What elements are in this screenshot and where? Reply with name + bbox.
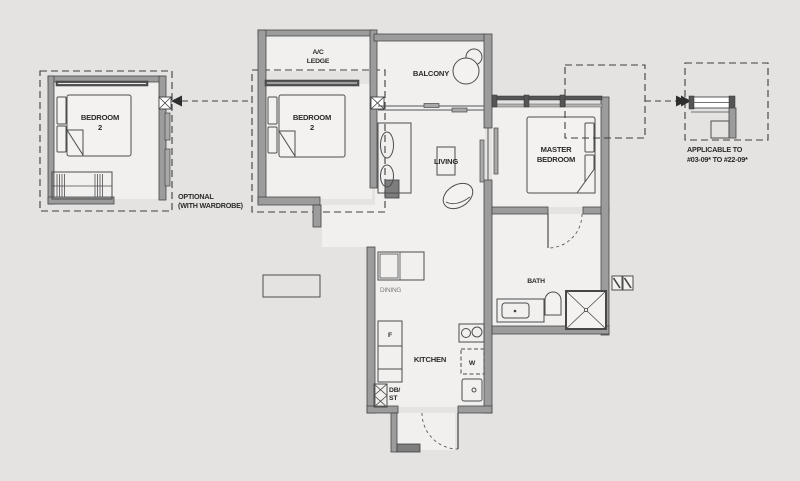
optional-connector-arrow	[171, 96, 252, 107]
pillow	[57, 126, 66, 152]
wall	[48, 76, 54, 204]
wall-top-ledge	[258, 30, 374, 36]
ac-ledge-label-line1: A/C	[312, 49, 323, 56]
master-label-line2: BEDROOM	[537, 155, 575, 164]
duct-square	[371, 97, 384, 109]
applicable-detail: APPLICABLE TO #03-09* TO #22-09*	[681, 63, 768, 164]
pillow	[268, 127, 277, 153]
wall-bedroom2-return	[313, 205, 321, 227]
optional-bedroom2-label-line2: 2	[98, 123, 102, 132]
wall-east-upper	[484, 34, 492, 128]
washer-label: W	[469, 360, 476, 367]
bedroom2-label-line2: 2	[310, 123, 314, 132]
dining-label: DINING	[380, 287, 401, 294]
wardrobe-panel	[165, 113, 170, 140]
optional-bedroom2-label-line1: BEDROOM	[81, 113, 119, 122]
ac-units	[612, 276, 633, 290]
living-label: LIVING	[434, 157, 458, 166]
wall-entry-step	[397, 444, 420, 452]
optional-note-line2: (WITH WARDROBE)	[178, 201, 244, 210]
fridge-label: F	[388, 332, 392, 339]
bed-bedroom2	[268, 95, 345, 157]
db-label-line1: DB/	[389, 387, 400, 394]
wall-bath-top-left	[492, 207, 548, 214]
duct-square	[159, 97, 171, 109]
wall-balcony-top	[374, 34, 486, 41]
toilet	[545, 292, 561, 315]
window-master	[492, 95, 602, 107]
shower	[566, 291, 606, 329]
db-label-line2: ST	[389, 395, 398, 402]
optional-note-line1: OPTIONAL	[178, 192, 214, 201]
applicable-note-line2: #03-09* TO #22-09*	[687, 155, 748, 164]
bath-label: BATH	[527, 278, 545, 285]
wall-bedroom2-bottom	[258, 197, 320, 205]
bed-optional-bedroom2	[57, 95, 131, 156]
wall-wardrobe-divider	[370, 104, 377, 188]
master-label-line1: MASTER	[541, 145, 573, 154]
applicable-note-line1: APPLICABLE TO	[687, 145, 743, 154]
detail-connector-arrow	[645, 96, 687, 107]
wardrobe-panel	[165, 149, 170, 186]
bedroom2-label-line1: BEDROOM	[293, 113, 331, 122]
ac-ledge-label-line2: LEDGE	[307, 58, 330, 65]
dining-table	[263, 275, 320, 297]
pillow	[57, 97, 66, 124]
floor-plan-page: BEDROOM 2 OPTIONAL (WITH WARDROBE)	[0, 0, 800, 481]
balcony-label: BALCONY	[413, 69, 449, 78]
pillow	[268, 97, 277, 124]
detail-wall-fragment	[689, 96, 736, 138]
kitchen-label: KITCHEN	[414, 355, 446, 364]
wall-left	[258, 30, 266, 203]
wall-kitchen-bottom-right	[458, 406, 492, 413]
wall	[48, 197, 114, 204]
wall-east-lower	[484, 180, 492, 413]
wall-entry-left	[391, 413, 397, 452]
floor-plan-drawing: BEDROOM 2 OPTIONAL (WITH WARDROBE)	[0, 0, 800, 481]
